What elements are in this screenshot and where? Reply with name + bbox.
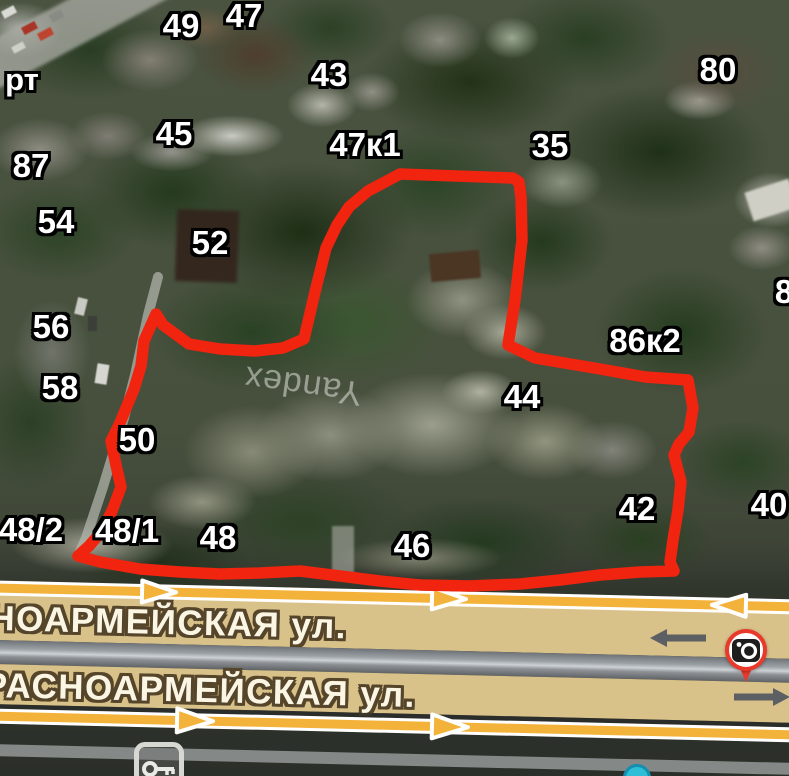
house-number: 54: [38, 203, 75, 241]
parcel-annotation-layer: [0, 0, 789, 776]
street-label-partial: рт: [5, 62, 39, 98]
street-direction-arrow-left-icon: [650, 628, 706, 648]
house-number: 8: [775, 273, 789, 311]
house-number: 48: [200, 519, 237, 557]
house-number: 40: [751, 486, 788, 524]
house-number: 47: [226, 0, 263, 35]
key-glyph-icon: [139, 749, 179, 776]
house-number: 52: [192, 224, 229, 262]
house-number: 48/2: [0, 511, 63, 549]
house-number: 80: [700, 51, 737, 89]
panorama-camera-pin[interactable]: [725, 629, 767, 671]
house-number: 50: [119, 421, 156, 459]
selection-polygon[interactable]: [78, 174, 693, 586]
house-number: 42: [619, 490, 656, 528]
camera-icon: [730, 634, 762, 666]
house-number: 46: [394, 527, 431, 565]
house-number: 56: [33, 308, 70, 346]
house-number: 49: [163, 7, 200, 45]
barrier-key-icon[interactable]: [134, 742, 184, 776]
house-number: 44: [504, 378, 541, 416]
house-number: 45: [156, 115, 193, 153]
map-viewport[interactable]: Yandex НОАРМЕЙСКАЯ ул. РАСНОАРМЕЙСКАЯ ул…: [0, 0, 789, 776]
house-number: 35: [532, 127, 569, 165]
house-number: 43: [311, 56, 348, 94]
house-number: 87: [13, 147, 50, 185]
house-number: 48/1: [95, 512, 159, 550]
house-number: 58: [42, 369, 79, 407]
house-number: 47к1: [329, 126, 401, 164]
house-number: 86к2: [609, 322, 681, 360]
street-direction-arrow-right-icon: [734, 687, 789, 707]
